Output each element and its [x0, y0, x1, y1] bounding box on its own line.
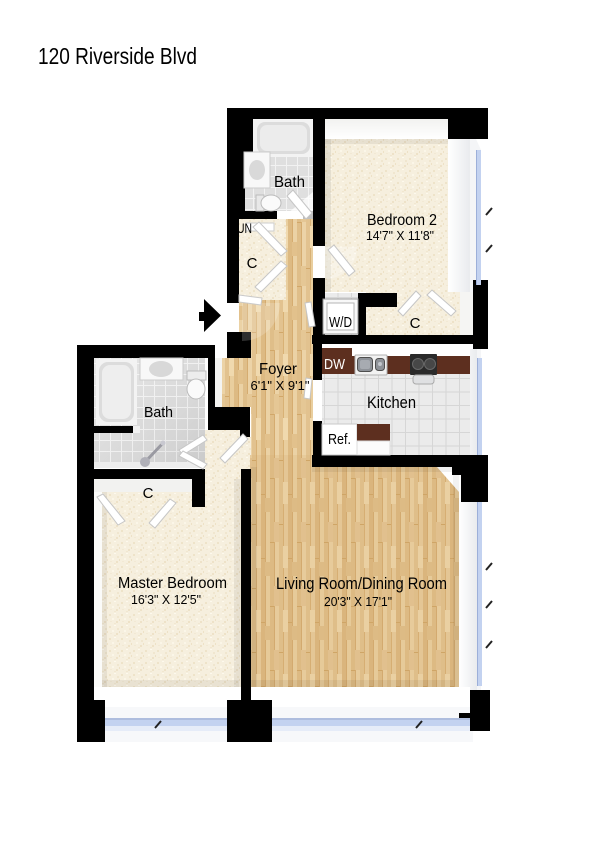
svg-text:W/D: W/D	[329, 314, 352, 331]
svg-text:DW: DW	[324, 356, 346, 373]
svg-text:Living Room/Dining Room: Living Room/Dining Room	[276, 574, 447, 593]
svg-text:Foyer: Foyer	[259, 361, 298, 378]
svg-text:Bath: Bath	[144, 404, 173, 421]
svg-text:Ref.: Ref.	[328, 431, 351, 448]
svg-text:Master Bedroom: Master Bedroom	[118, 575, 227, 592]
svg-text:120 Riverside Blvd: 120 Riverside Blvd	[38, 43, 197, 69]
svg-text:6'1" X 9'1": 6'1" X 9'1"	[250, 378, 309, 393]
svg-text:C: C	[247, 255, 258, 272]
svg-text:14'7" X 11'8": 14'7" X 11'8"	[366, 228, 434, 243]
svg-text:C: C	[143, 485, 154, 502]
svg-text:C: C	[410, 315, 421, 332]
svg-text:16'3" X 12'5": 16'3" X 12'5"	[131, 592, 201, 607]
svg-text:Bath: Bath	[274, 174, 305, 191]
svg-text:20'3" X 17'1": 20'3" X 17'1"	[324, 594, 392, 609]
svg-text:Kitchen: Kitchen	[367, 393, 416, 412]
svg-text:UN: UN	[237, 220, 252, 236]
svg-text:Bedroom 2: Bedroom 2	[367, 212, 437, 229]
